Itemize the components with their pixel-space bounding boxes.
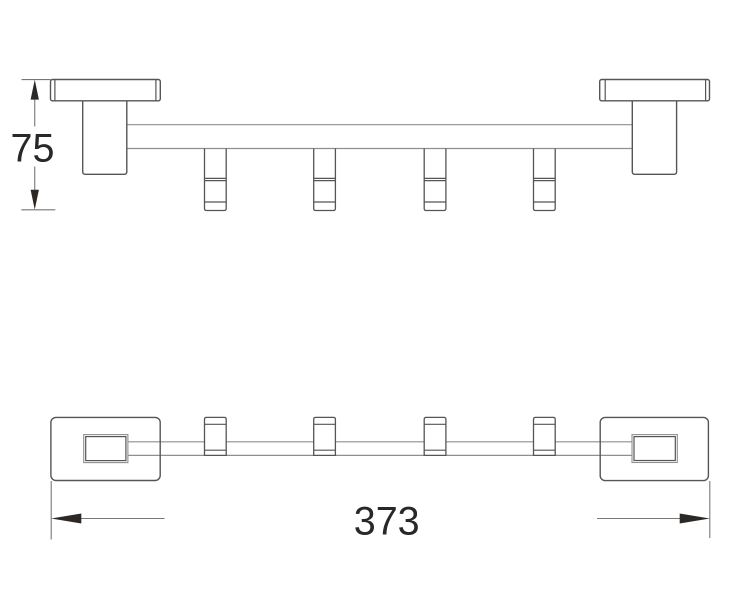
svg-text:373: 373 — [354, 499, 420, 543]
svg-text:75: 75 — [11, 126, 55, 170]
